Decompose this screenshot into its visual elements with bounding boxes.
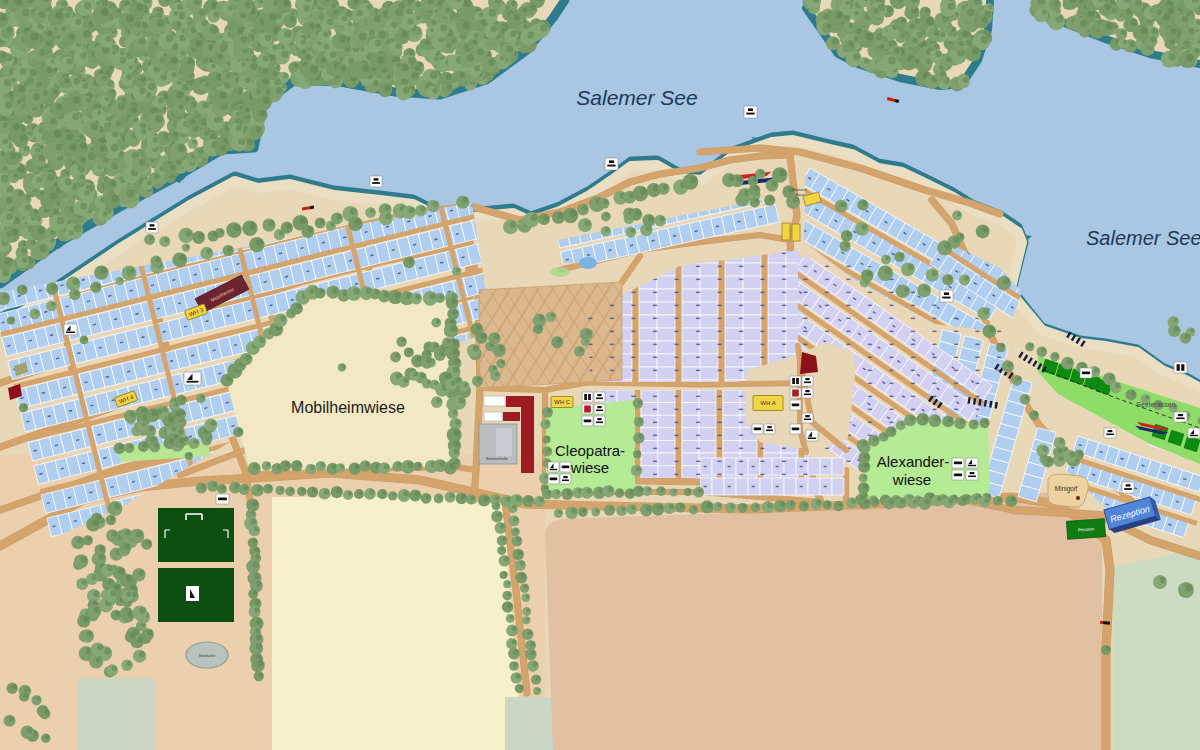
- svg-text:wiese: wiese: [892, 471, 931, 488]
- svg-text:Bahnhofshalle: Bahnhofshalle: [486, 457, 508, 461]
- svg-text:Salemer See: Salemer See: [576, 86, 697, 109]
- svg-text:Alexander-: Alexander-: [877, 453, 950, 470]
- svg-text:Mobilheimwiese: Mobilheimwiese: [291, 399, 405, 416]
- svg-text:Minigolf: Minigolf: [1055, 485, 1078, 493]
- svg-text:Haus: Haus: [795, 192, 804, 197]
- svg-text:Steinkuhle: Steinkuhle: [199, 654, 215, 658]
- svg-text:Salemer See: Salemer See: [1086, 227, 1200, 249]
- svg-text:WH C: WH C: [554, 399, 571, 405]
- svg-text:Seeterassen: Seeterassen: [1136, 401, 1175, 408]
- svg-text:wiese: wiese: [570, 459, 609, 476]
- svg-text:Cleopatra-: Cleopatra-: [555, 442, 625, 459]
- svg-text:WH A: WH A: [760, 400, 775, 406]
